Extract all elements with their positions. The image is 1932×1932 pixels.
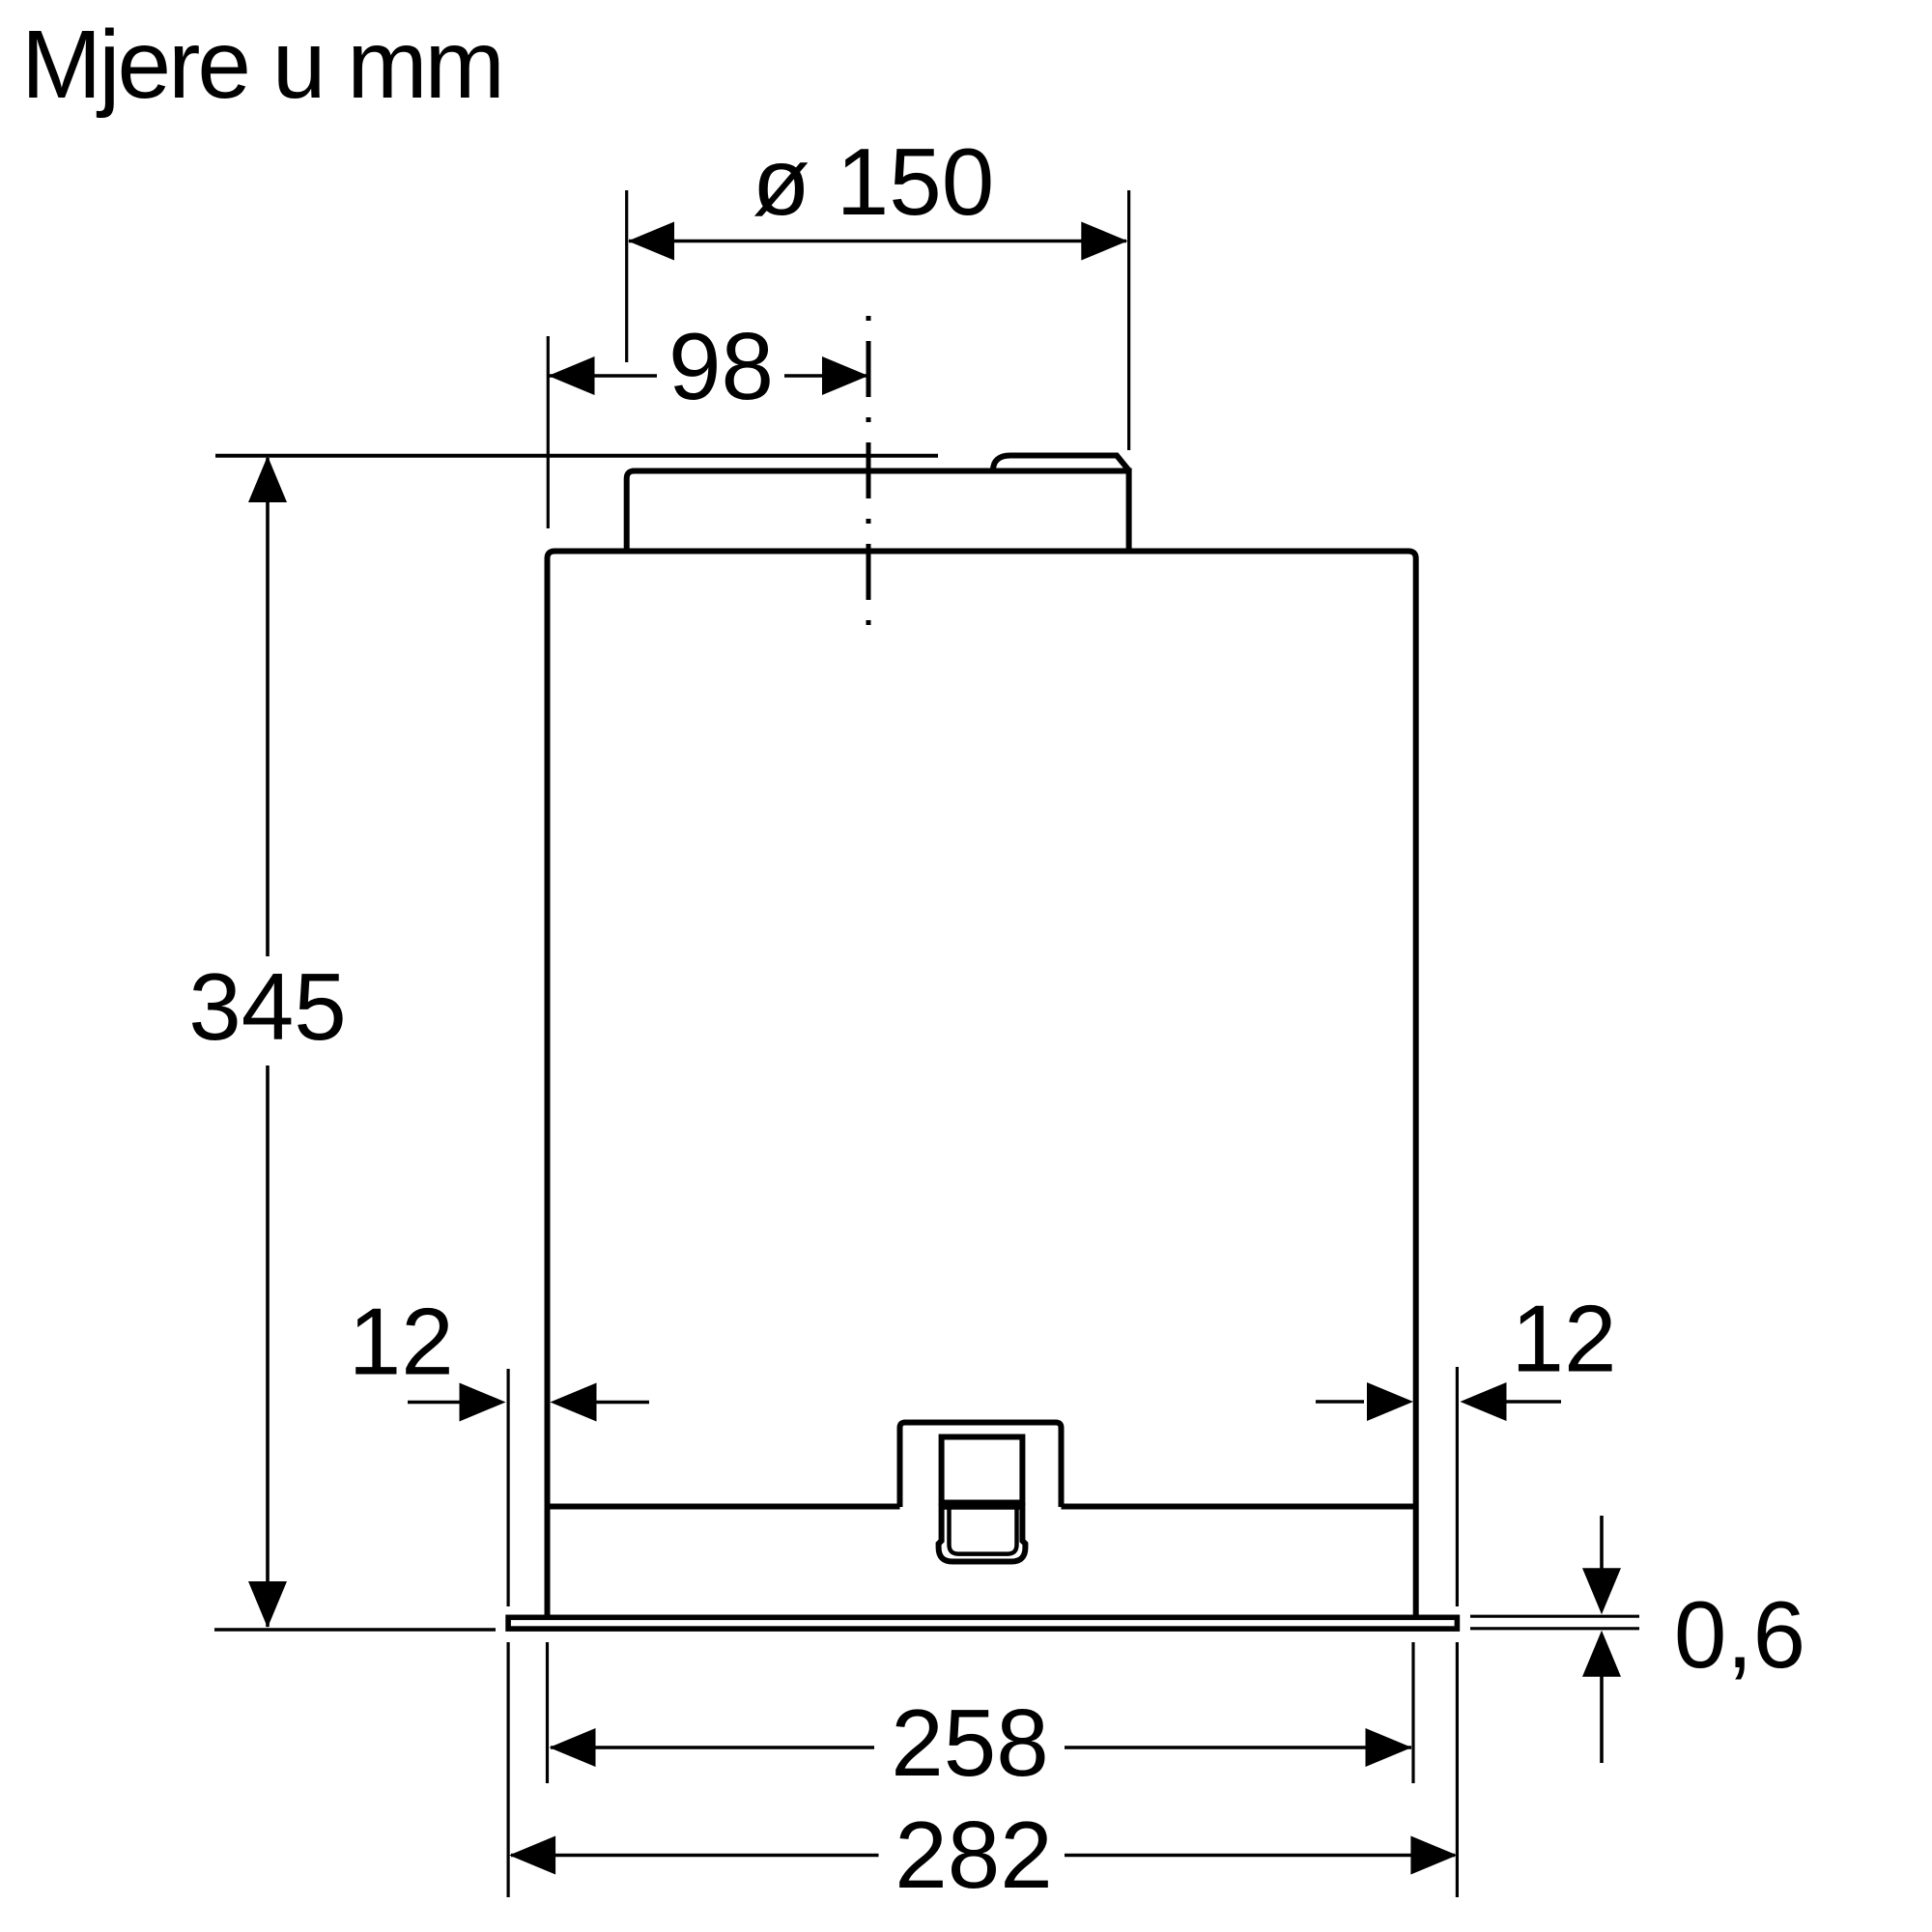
svg-text:12: 12 xyxy=(349,1289,454,1395)
svg-text:345: 345 xyxy=(188,953,347,1060)
svg-text:12: 12 xyxy=(1511,1286,1616,1392)
svg-text:258: 258 xyxy=(891,1690,1049,1796)
svg-text:ø 150: ø 150 xyxy=(753,128,995,235)
svg-text:Mjere u mm: Mjere u mm xyxy=(21,11,502,119)
svg-text:98: 98 xyxy=(668,313,774,419)
svg-text:0,6: 0,6 xyxy=(1674,1581,1805,1688)
svg-text:282: 282 xyxy=(895,1802,1053,1908)
